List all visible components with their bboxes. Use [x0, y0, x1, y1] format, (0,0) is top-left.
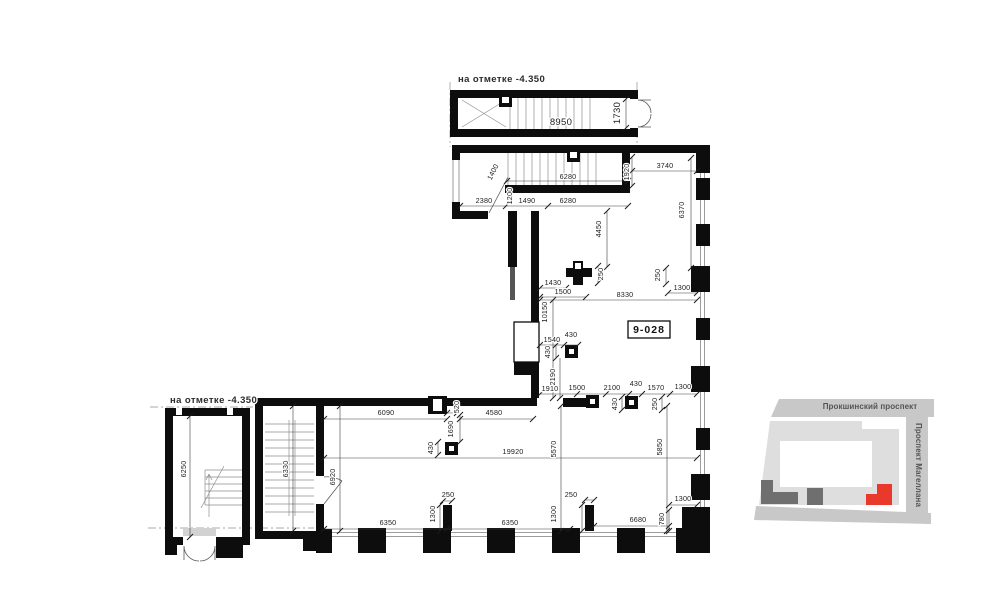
dim-label: 4580 — [486, 408, 503, 417]
dim-label: 430 — [426, 442, 435, 455]
street-right-label: Проспект Магеллана — [914, 423, 923, 507]
dim-label: 1200 — [505, 188, 514, 205]
north-wall — [452, 145, 710, 153]
dim-label: 1300 — [549, 506, 558, 523]
east-curtain-wall — [691, 153, 710, 531]
dim-label: 1690 — [446, 421, 455, 438]
dim-label: 6680 — [630, 515, 647, 524]
dim-label: 5850 — [655, 439, 664, 456]
building-unit-dark — [773, 492, 798, 504]
dim-label: 430 — [610, 398, 619, 411]
door-opening — [183, 536, 216, 546]
dim-label: 2190 — [548, 369, 557, 386]
dim-label: 2380 — [476, 196, 493, 205]
room-tag-label: 9-028 — [633, 324, 665, 336]
dim-label: 430 — [630, 379, 643, 388]
dim-label: 5570 — [549, 441, 558, 458]
dim-label: 250 — [565, 490, 578, 499]
double-door-icon — [638, 100, 651, 127]
dim-label: 6350 — [380, 518, 397, 527]
dim-label: 1400 — [485, 162, 500, 181]
elevation-label: на отметке -4.350 — [170, 395, 257, 406]
dim-label: 8330 — [617, 290, 634, 299]
double-door-icon — [184, 546, 215, 561]
dim-label: 1570 — [648, 383, 665, 392]
dim-label: 1300 — [428, 506, 437, 523]
left-stair-annex — [165, 408, 250, 561]
duct-shaft — [514, 322, 539, 362]
street-bottom — [754, 506, 931, 524]
dim-label: 6250 — [179, 461, 188, 478]
dim-label: 6330 — [281, 461, 290, 478]
door-opening — [488, 210, 508, 220]
building-unit-dark — [761, 480, 773, 504]
dim-label: 10150 — [540, 302, 549, 323]
dim-label: 1730 — [612, 102, 623, 124]
column — [445, 442, 458, 455]
building-unit-dark — [807, 488, 823, 505]
dim-label: 2100 — [604, 383, 621, 392]
dim-label: 6280 — [560, 172, 577, 181]
dim-label: 1500 — [555, 287, 572, 296]
column — [625, 396, 638, 409]
dim-label: 6350 — [502, 518, 519, 527]
dim-label: 1910 — [542, 384, 559, 393]
dim-label: 19920 — [503, 447, 524, 456]
door-opening — [629, 99, 638, 128]
dim-label: 1300 — [675, 494, 692, 503]
dim-label: 6920 — [328, 469, 337, 486]
street-top-label: Прокшинский проспект — [823, 402, 918, 411]
dim-label: 3740 — [657, 161, 674, 170]
wall-fin — [443, 505, 452, 531]
dim-label: 1500 — [569, 383, 586, 392]
dim-label: 430 — [543, 346, 552, 359]
dim-label: 430 — [565, 330, 578, 339]
floor-plan-drawing: на отметке -4.350 на отметке -4.350 8950… — [0, 0, 1008, 600]
dim-label: 8950 — [550, 117, 572, 128]
dim-label: 1430 — [545, 278, 562, 287]
dim-label: 1300 — [675, 382, 692, 391]
dim-label: 1920 — [622, 164, 631, 181]
door-threshold — [183, 528, 216, 536]
dim-label: 1490 — [519, 196, 536, 205]
dim-label: 250 — [596, 268, 605, 281]
door-opening — [315, 476, 325, 504]
elevation-label: на отметке -4.350 — [458, 74, 545, 85]
dim-label: 1540 — [544, 335, 561, 344]
cross-column — [566, 261, 592, 285]
dim-label: 6370 — [677, 202, 686, 219]
room-tag: 9-028 — [628, 321, 670, 338]
stair-treads — [201, 466, 242, 517]
dim-label: 780 — [657, 513, 666, 526]
dim-label: 1300 — [674, 283, 691, 292]
dim-label: 250 — [650, 398, 659, 411]
dim-label: 520 — [452, 401, 461, 414]
dim-label: 250 — [442, 490, 455, 499]
dim-label: 6280 — [560, 196, 577, 205]
dim-label: 250 — [653, 269, 662, 282]
location-map: Прокшинский проспект Проспект Магеллана — [754, 399, 934, 524]
dim-label: 4450 — [594, 221, 603, 238]
dim-label: 6090 — [378, 408, 395, 417]
